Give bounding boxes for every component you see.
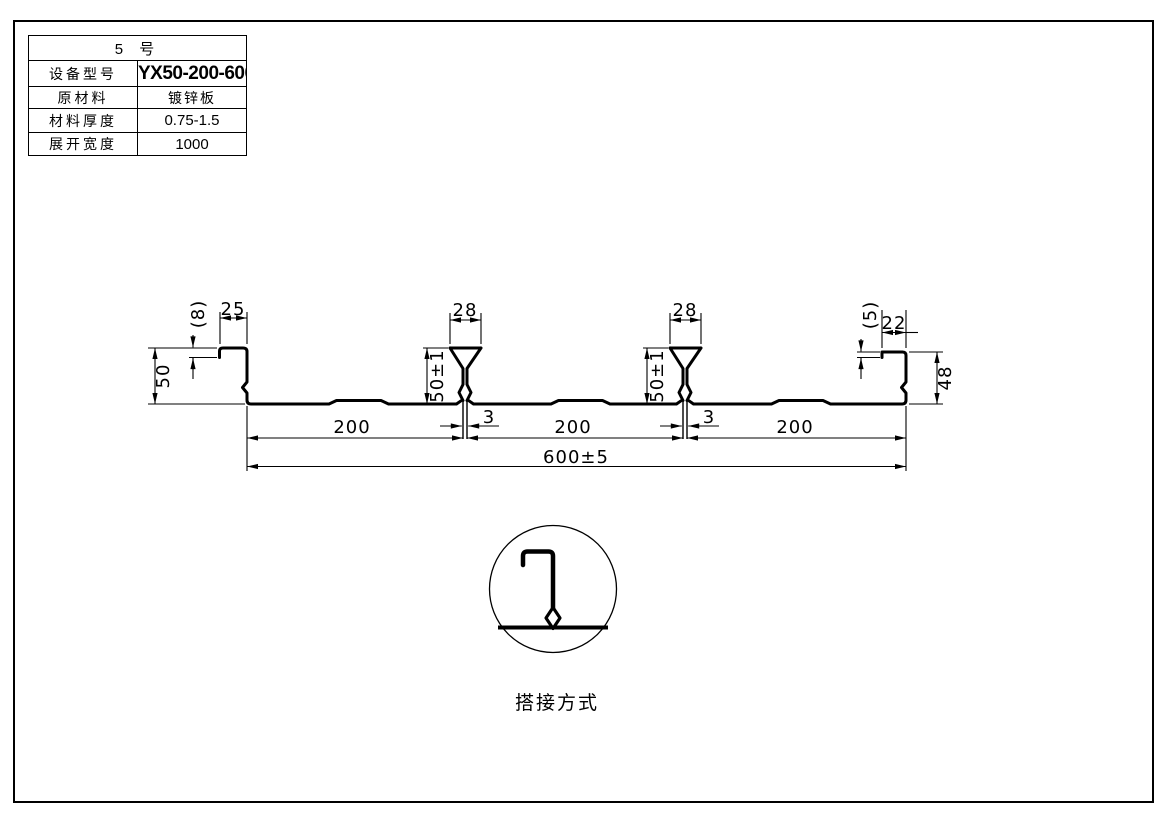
rib-2-seam-stem: [683, 401, 687, 440]
rib-1: [450, 348, 481, 401]
dim-right-lip-text: (5): [860, 301, 881, 330]
dim-right-flange-text: 22: [882, 313, 907, 334]
dim-rib2-height-text: 50±1: [647, 349, 668, 402]
dim-left-lip-extensions: [189, 348, 217, 358]
lap-detail-caption: 搭接方式: [515, 692, 599, 714]
profile-left-section: [220, 348, 462, 404]
dim-left-flange-text: 25: [221, 299, 246, 320]
dim-rib1-top-text: 28: [453, 300, 478, 321]
dim-rib1-gap-text: 3: [483, 407, 495, 428]
dim-pan3-text: 200: [776, 417, 813, 438]
profile-drawing: 50 (8) 25 28 50±1 3 28 50±1 3 22 (5) 48 …: [0, 0, 1169, 827]
dim-right-lip-extensions: [857, 352, 880, 358]
dim-rib2-gap-text: 3: [703, 407, 715, 428]
dim-overall-text: 600±5: [543, 447, 609, 468]
profile-right-section: [689, 352, 906, 404]
dim-left-lip-text: (8): [188, 300, 209, 329]
rib-1-seam-stem: [463, 401, 467, 440]
rib-2: [670, 348, 701, 401]
dim-left-height-text: 50: [153, 364, 174, 389]
dim-pan1-text: 200: [333, 417, 370, 438]
lap-detail-hook: [523, 552, 553, 609]
lap-detail-seam-diamond: [546, 608, 560, 629]
dim-pan2-text: 200: [554, 417, 591, 438]
dim-rib1-height-text: 50±1: [427, 349, 448, 402]
dim-right-height-text: 48: [935, 366, 956, 391]
drawing-sheet: 5 号 设备型号 YX50-200-600 原材料 镀锌板 材料厚度 0.75-…: [0, 0, 1169, 827]
dim-rib2-top-text: 28: [673, 300, 698, 321]
